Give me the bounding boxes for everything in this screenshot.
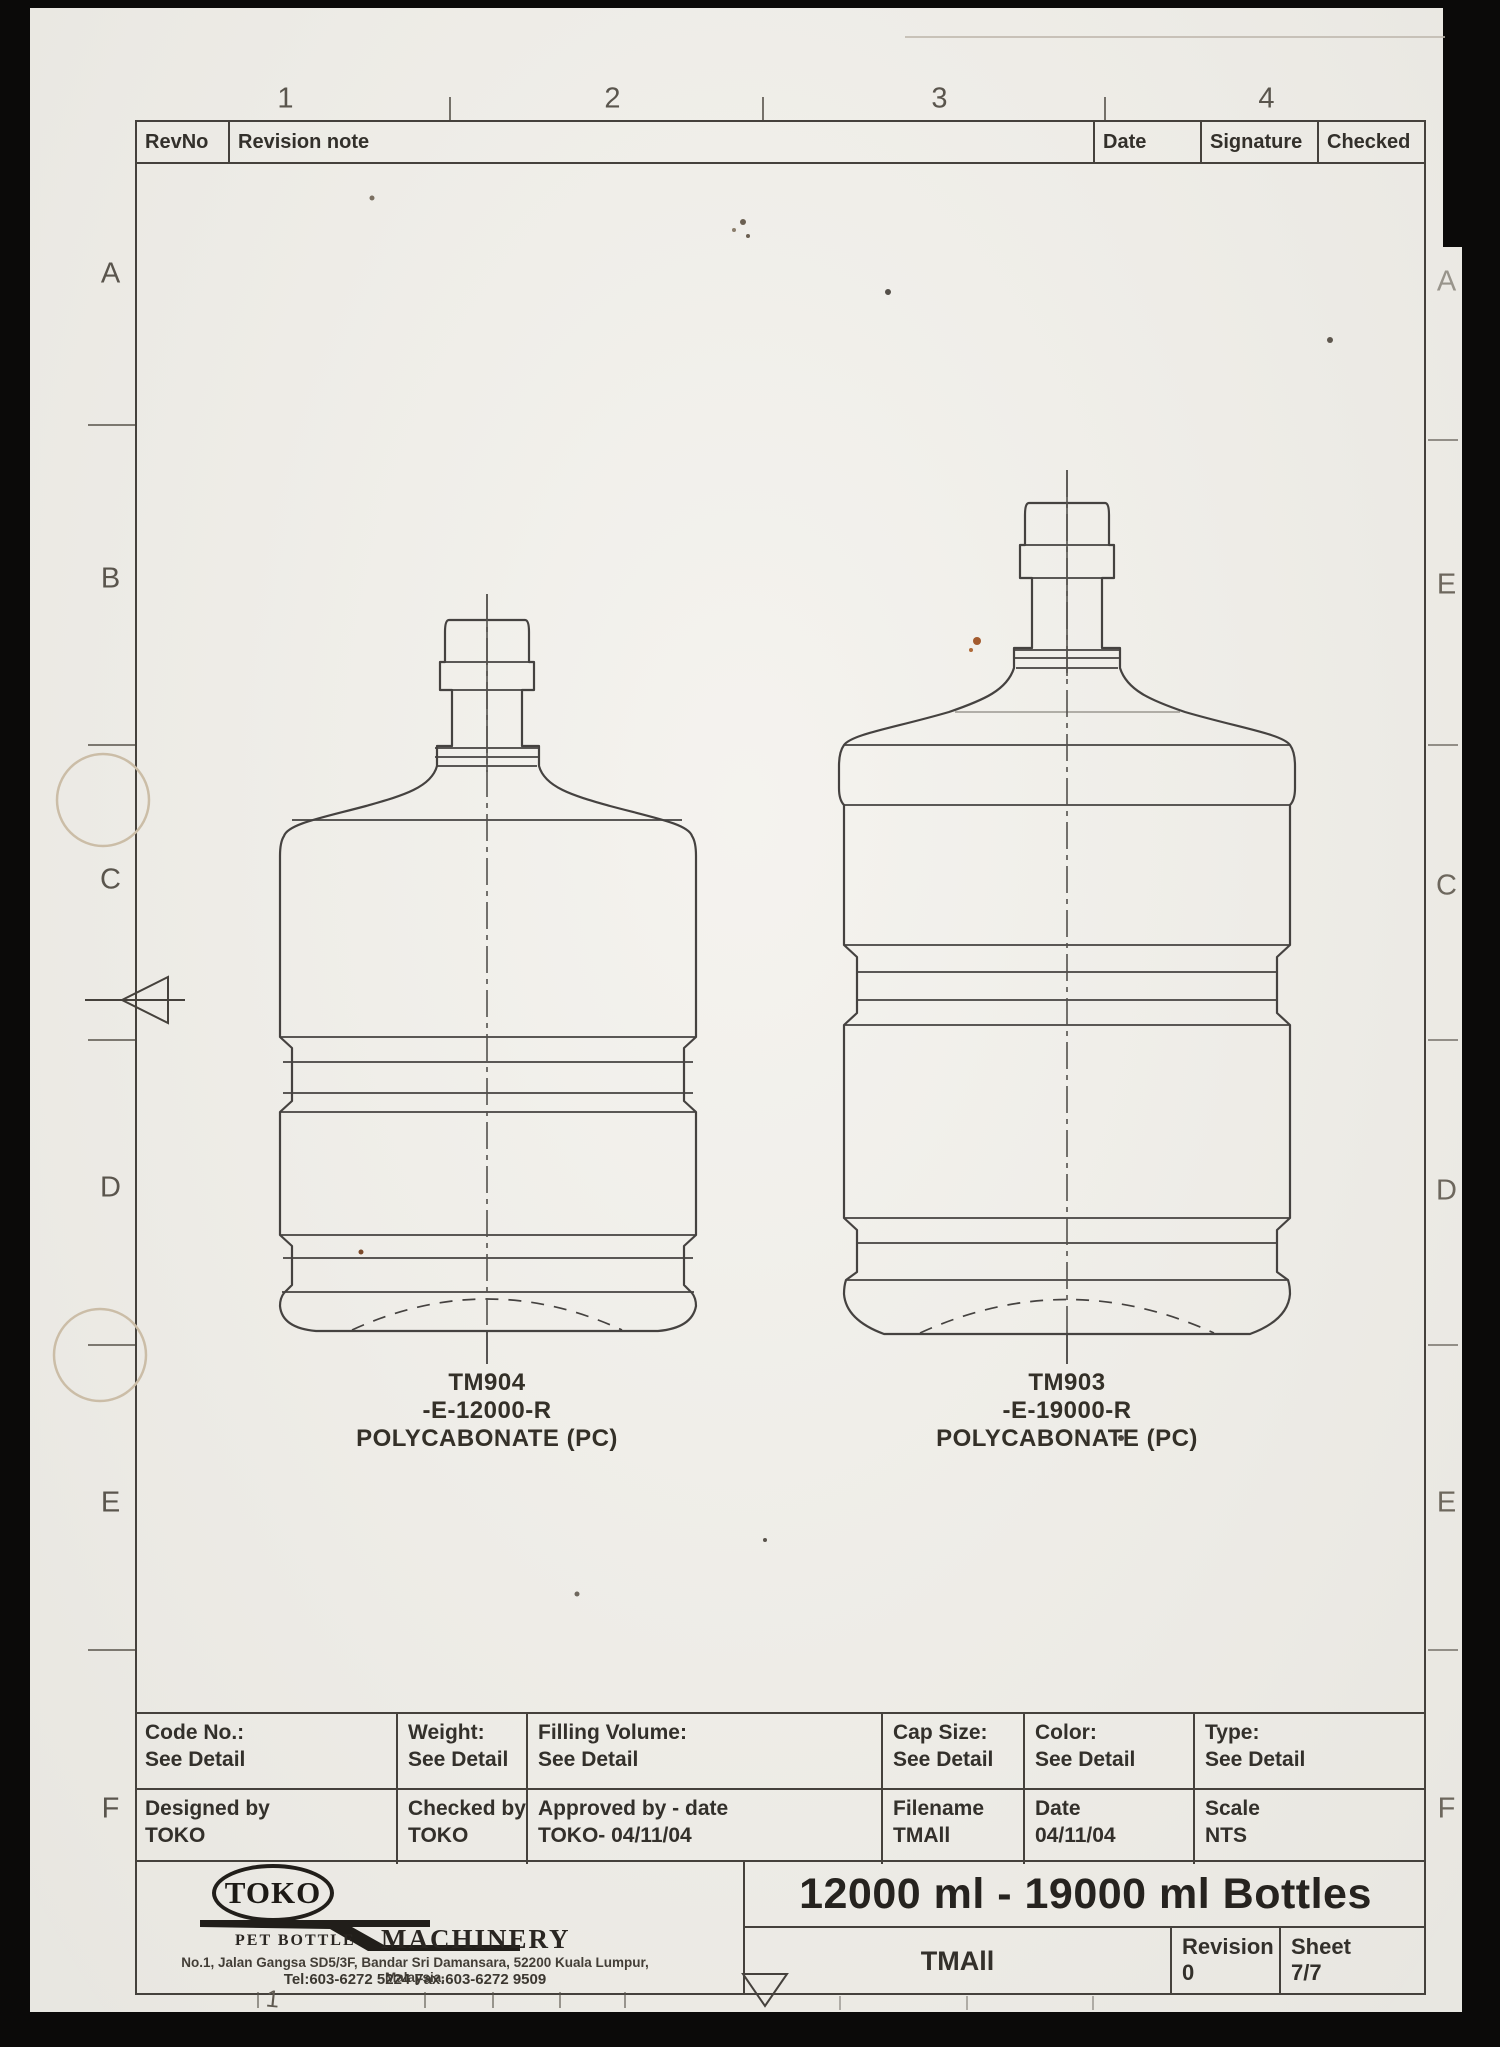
- spec-filling-volume: Filling Volume: See Detail: [528, 1714, 883, 1790]
- spec-scale: Scale NTS: [1195, 1790, 1426, 1864]
- sheet-value: 7/7: [1281, 1960, 1426, 1986]
- spec-date: Date 04/11/04: [1025, 1790, 1195, 1864]
- row-marker-left-d: D: [100, 1172, 122, 1205]
- spec-table: Code No.: See Detail Weight: See Detail …: [135, 1712, 1426, 1862]
- row-marker-left-c: C: [100, 864, 122, 897]
- bottle-model: TM903: [857, 1369, 1277, 1397]
- row-marker-left-f: F: [102, 1793, 121, 1826]
- revision-col-checked: Checked: [1319, 122, 1428, 162]
- revision-label: Revision: [1172, 1928, 1279, 1960]
- bottle-variant: -E-19000-R: [857, 1397, 1277, 1425]
- revision-col-note: Revision note: [230, 122, 1095, 162]
- title-area: 12000 ml - 19000 ml Bottles TMAll Revisi…: [745, 1862, 1426, 1995]
- row-marker-right-a: A: [1437, 266, 1457, 299]
- bottle-variant: -E-12000-R: [277, 1397, 697, 1425]
- spec-cap-size: Cap Size: See Detail: [883, 1714, 1025, 1790]
- scan-black-corner: [1443, 0, 1500, 247]
- title-bottom-row: TMAll Revision 0 Sheet 7/7: [745, 1928, 1426, 1995]
- row-marker-right-c: C: [1436, 870, 1458, 903]
- spec-checked-by: Checked by TOKO: [398, 1790, 528, 1864]
- toko-logo: TOKO: [212, 1864, 334, 1922]
- sheet-cell: Sheet 7/7: [1279, 1928, 1426, 1995]
- tagline-machinery: MACHINERY: [381, 1924, 571, 1955]
- row-marker-right-d: D: [1436, 1175, 1458, 1208]
- bottle-material: POLYCABONATE (PC): [277, 1425, 697, 1453]
- company-contact: Tel:603-6272 5224 Fax:603-6272 9509: [165, 1971, 665, 1988]
- spec-weight: Weight: See Detail: [398, 1714, 528, 1790]
- spec-code-no: Code No.: See Detail: [135, 1714, 398, 1790]
- scanned-engineering-drawing: { "sheet": { "column_markers": ["1","2",…: [0, 0, 1500, 2047]
- row-marker-left-e: E: [101, 1487, 121, 1520]
- column-marker-4: 4: [1258, 83, 1275, 116]
- revision-value: 0: [1172, 1960, 1279, 1986]
- company-logo-area: TOKO PET BOTTLE MACHINERY No.1, Jalan Ga…: [135, 1862, 745, 1995]
- toko-logo-text: TOKO: [225, 1875, 321, 1911]
- revision-table-header: RevNo Revision note Date Signature Check…: [135, 120, 1426, 164]
- row-marker-left-a: A: [101, 258, 121, 291]
- row-marker-left-b: B: [101, 563, 121, 596]
- revision-col-date: Date: [1095, 122, 1202, 162]
- revision-col-revno: RevNo: [137, 122, 230, 162]
- column-marker-3: 3: [931, 83, 948, 116]
- column-marker-1: 1: [277, 83, 294, 116]
- spec-color: Color: See Detail: [1025, 1714, 1195, 1790]
- bottle-label-tm904: TM904 -E-12000-R POLYCABONATE (PC): [277, 1369, 697, 1453]
- scan-edge-artifact: [905, 36, 1445, 38]
- spec-type: Type: See Detail: [1195, 1714, 1426, 1790]
- spec-designed-by: Designed by TOKO: [135, 1790, 398, 1864]
- column-marker-2: 2: [604, 83, 621, 116]
- row-marker-right-e: E: [1437, 1487, 1457, 1520]
- tagline-pet-bottle: PET BOTTLE: [235, 1932, 356, 1950]
- drawing-name-cell: TMAll: [745, 1928, 1170, 1995]
- bottle-material: POLYCABONATE (PC): [857, 1425, 1277, 1453]
- spec-filename: Filename TMAll: [883, 1790, 1025, 1864]
- revision-cell: Revision 0: [1170, 1928, 1279, 1995]
- row-marker-right-b: E: [1437, 569, 1457, 602]
- drawing-title: 12000 ml - 19000 ml Bottles: [745, 1862, 1426, 1928]
- row-marker-right-f: F: [1438, 1793, 1457, 1826]
- bottle-label-tm903: TM903 -E-19000-R POLYCABONATE (PC): [857, 1369, 1277, 1453]
- spec-approved-by: Approved by - date TOKO- 04/11/04: [528, 1790, 883, 1864]
- sheet-label: Sheet: [1281, 1928, 1426, 1960]
- title-block: TOKO PET BOTTLE MACHINERY No.1, Jalan Ga…: [135, 1862, 1426, 1995]
- bottle-model: TM904: [277, 1369, 697, 1397]
- revision-col-signature: Signature: [1202, 122, 1319, 162]
